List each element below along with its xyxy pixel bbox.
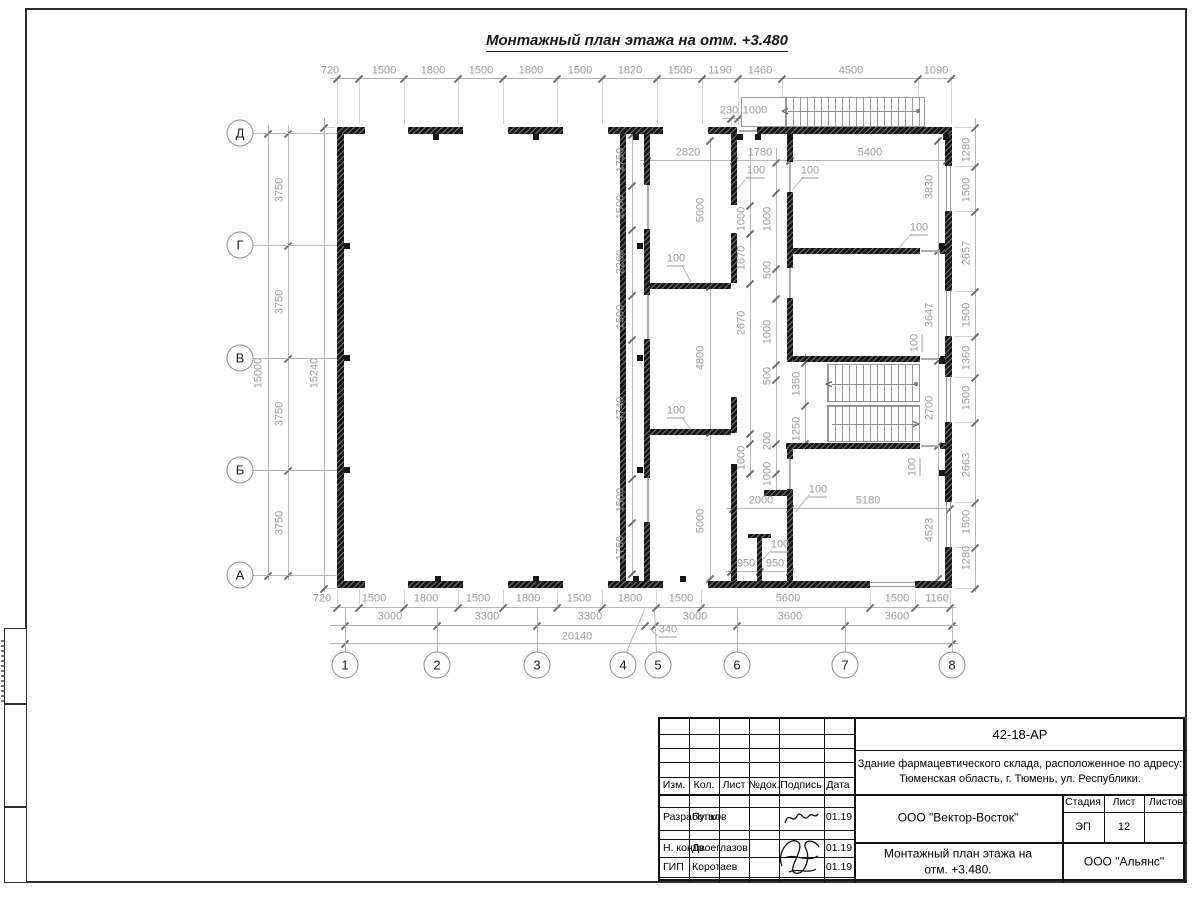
- column-tab: [637, 355, 643, 361]
- dimension-label: 1500: [469, 66, 493, 77]
- dimension-label: 720: [313, 594, 331, 605]
- dimension-label: 5600: [776, 594, 800, 605]
- title-block: 42-18-АР Здание фармацевтического склада…: [658, 717, 1185, 881]
- dimension-label: 500: [763, 367, 774, 385]
- extension-line: [954, 291, 973, 292]
- dimension-line: [288, 125, 289, 580]
- door-opening-line: [789, 162, 791, 192]
- dimension-label: 3750: [275, 511, 286, 535]
- stair-direction-arrow: >: [912, 417, 919, 431]
- door-opening-line: [921, 445, 940, 447]
- door-opening-line: [789, 268, 791, 298]
- wall: [731, 134, 737, 205]
- axis-bubble: 6: [724, 652, 751, 679]
- door-opening-line: [921, 250, 940, 252]
- dimension-label: 2260: [616, 250, 627, 274]
- col-ndok: №док.: [749, 780, 780, 792]
- dimension-label: 3300: [475, 612, 499, 623]
- extension-line: [557, 590, 558, 605]
- dimension-line: [324, 118, 325, 592]
- extension-line: [337, 80, 338, 124]
- margin-stamp-strip: [4, 628, 27, 883]
- date-developer: 01.19: [826, 812, 852, 824]
- extension-line: [557, 80, 558, 124]
- wall: [945, 547, 952, 581]
- column-tab: [435, 576, 441, 582]
- column-tab: [939, 470, 945, 476]
- wall: [915, 581, 952, 588]
- extension-line: [602, 590, 603, 605]
- dimension-label: 1000: [763, 207, 774, 231]
- extension-line: [954, 166, 973, 167]
- wall: [731, 397, 737, 433]
- dimension-label: 1750: [616, 536, 627, 560]
- dimension-label: 15000: [254, 358, 265, 389]
- wall: [793, 356, 920, 362]
- dimension-label: 3647: [925, 303, 936, 327]
- dimension-label: 3600: [885, 612, 909, 623]
- column-tab: [943, 134, 949, 140]
- dimension-line: [330, 643, 958, 644]
- extension-line: [954, 588, 973, 589]
- strip-fine-print: [1, 640, 4, 702]
- dimension-label: 1800: [421, 66, 445, 77]
- wall: [787, 489, 793, 581]
- axis-connector: [253, 245, 337, 246]
- dimension-label: 1500: [669, 594, 693, 605]
- dimension-label: 1500: [616, 488, 627, 512]
- dimension-label: 4740: [616, 397, 627, 421]
- dimension-label: 100: [801, 166, 819, 179]
- dimension-label: 1000: [743, 106, 767, 117]
- dimension-label: 2657: [962, 241, 973, 265]
- dimension-line: [330, 78, 956, 79]
- extension-line: [915, 590, 916, 605]
- wall: [644, 134, 650, 185]
- extension-line: [458, 80, 459, 124]
- axis-connector: [345, 607, 346, 652]
- dimension-label: 3600: [778, 612, 802, 623]
- window: [870, 582, 915, 587]
- stair-direction-arrow: <: [781, 104, 788, 118]
- dimension-label: 1350: [792, 372, 803, 396]
- dimension-label: 3000: [378, 612, 402, 623]
- dimension-label: 100: [667, 406, 685, 419]
- dimension-label: 1500: [616, 305, 627, 329]
- dimension-label: 100: [747, 166, 765, 179]
- wall: [337, 134, 344, 581]
- column-tab: [737, 134, 743, 140]
- sheet-label: Лист: [1113, 797, 1136, 809]
- dimension-line: [975, 118, 976, 592]
- axis-bubble: 8: [939, 652, 966, 679]
- dimension-label: 1000: [763, 462, 774, 486]
- extension-line: [954, 377, 973, 378]
- extension-line: [503, 590, 504, 605]
- dimension-label: 1500: [567, 594, 591, 605]
- dimension-label: 1500: [568, 66, 592, 77]
- axis-connector: [253, 575, 337, 576]
- dimension-label: 1000: [737, 446, 748, 470]
- dimension-line: [640, 160, 950, 161]
- extension-line: [702, 80, 703, 124]
- axis-bubble: А: [227, 562, 254, 589]
- window: [946, 291, 951, 336]
- dimension-label: 100: [908, 458, 921, 476]
- stair-line-dot: [916, 109, 920, 113]
- dimension-label: 1090: [924, 66, 948, 77]
- role-gip: ГИП: [663, 862, 684, 874]
- extension-line: [602, 80, 603, 124]
- stage-label: Стадия: [1065, 797, 1101, 809]
- extension-line: [951, 80, 952, 124]
- axis-connector: [437, 607, 438, 652]
- wall: [608, 581, 663, 588]
- dimension-label: 15240: [310, 358, 321, 389]
- dimension-label: 1750: [616, 148, 627, 172]
- extension-line: [656, 590, 657, 605]
- drawing-title-line2: отм. +3.480.: [924, 863, 991, 876]
- axis-connector: [253, 470, 337, 471]
- window: [946, 502, 951, 547]
- column-tab: [533, 134, 539, 140]
- column-tab: [344, 243, 350, 249]
- dimension-label: 1820: [618, 66, 642, 77]
- dimension-label: 230: [720, 106, 738, 117]
- door-opening-line: [647, 185, 649, 229]
- wall: [608, 127, 663, 134]
- dimension-label: 950: [737, 559, 755, 570]
- external-stair-treads: [785, 97, 920, 127]
- wall: [940, 443, 945, 449]
- stair-line-dot: [914, 382, 918, 386]
- dimension-label: 5180: [856, 496, 880, 507]
- column-tab: [633, 576, 639, 582]
- dimension-line: [632, 134, 633, 576]
- wall: [708, 581, 870, 588]
- signature-gip: [774, 832, 824, 878]
- dimension-label: 5000: [696, 509, 707, 533]
- doc-number: 42-18-АР: [993, 728, 1048, 742]
- dimension-label: 100: [771, 540, 789, 553]
- wall: [945, 336, 952, 377]
- wall: [748, 534, 771, 538]
- dimension-label: 1500: [962, 303, 973, 327]
- dimension-line: [330, 607, 956, 608]
- extension-line: [458, 590, 459, 605]
- name-ncontrol: Двоеглазов: [692, 843, 748, 855]
- stair-direction-arrow: <: [825, 377, 832, 391]
- extension-line: [404, 590, 405, 605]
- axis-bubble: 1: [332, 652, 359, 679]
- axis-connector: [952, 607, 953, 652]
- axis-bubble: Б: [227, 457, 254, 484]
- dimension-label: 1500: [668, 66, 692, 77]
- dimension-label: 1500: [885, 594, 909, 605]
- dimension-label: 1250: [792, 417, 803, 441]
- axis-bubble: Д: [227, 120, 254, 147]
- axis-bubble: 7: [832, 652, 859, 679]
- dimension-line: [710, 138, 711, 578]
- dimension-label: 20140: [562, 632, 593, 643]
- dimension-label: 1500: [372, 66, 396, 77]
- dimension-label: 500: [763, 261, 774, 279]
- column-tab: [344, 355, 350, 361]
- extension-line: [954, 502, 973, 503]
- extension-line: [954, 127, 973, 128]
- dimension-label: 200: [763, 432, 774, 450]
- dimension-label: 1460: [748, 66, 772, 77]
- stage-value: ЭП: [1075, 821, 1091, 833]
- extension-line: [954, 336, 973, 337]
- window: [946, 166, 951, 211]
- dimension-label: 1500: [616, 195, 627, 219]
- wall: [337, 581, 365, 588]
- dimension-label: 2820: [676, 148, 700, 159]
- window: [946, 377, 951, 422]
- axis-connector: [253, 358, 337, 359]
- dimension-label: 3750: [275, 290, 286, 314]
- dimension-label: 5000: [696, 198, 707, 222]
- extension-line: [950, 590, 951, 605]
- dimension-label: 1000: [737, 207, 748, 231]
- wall: [650, 283, 731, 289]
- extension-line: [337, 590, 338, 605]
- dimension-label: 1800: [618, 594, 642, 605]
- column-tab: [637, 243, 643, 249]
- axis-bubble: Г: [227, 232, 254, 259]
- wall: [708, 127, 737, 134]
- column-tab: [939, 358, 945, 364]
- door-opening-line: [789, 459, 791, 489]
- extension-line: [404, 80, 405, 124]
- dimension-label: 1500: [466, 594, 490, 605]
- project-description-line1: Здание фармацевтического склада, располо…: [858, 758, 1183, 770]
- drawing-sheet: Монтажный план этажа на отм. +3.480 <<>7…: [0, 0, 1200, 900]
- axis-bubble: 2: [424, 652, 451, 679]
- col-podpis: Подпись: [780, 780, 822, 792]
- wall: [644, 522, 650, 581]
- dimension-label: 340: [659, 625, 677, 638]
- dimension-label: 1190: [708, 66, 732, 77]
- column-tab: [433, 134, 439, 140]
- wall: [787, 298, 793, 362]
- wall: [945, 422, 952, 502]
- drawing-title-line1: Монтажный план этажа на: [884, 847, 1032, 860]
- wall: [757, 538, 762, 581]
- door-opening-line: [921, 358, 940, 360]
- stair-direction-line: [788, 111, 919, 112]
- dimension-label: 1800: [519, 66, 543, 77]
- date-gip: 01.19: [826, 862, 852, 874]
- design-company: ООО "Вектор-Восток": [898, 811, 1019, 824]
- extension-line: [359, 590, 360, 605]
- dimension-label: 100: [910, 223, 928, 236]
- date-ncontrol: 01.19: [826, 843, 852, 855]
- column-tab: [533, 576, 539, 582]
- wall: [650, 429, 731, 435]
- dimension-label: 2700: [925, 396, 936, 420]
- signature-developer: [780, 808, 822, 828]
- axis-bubble: 3: [524, 652, 551, 679]
- dimension-label: 1500: [362, 594, 386, 605]
- dimension-line: [268, 125, 269, 580]
- extension-line: [954, 422, 973, 423]
- dimension-label: 1500: [962, 386, 973, 410]
- dimension-label: 3300: [578, 612, 602, 623]
- wall: [408, 127, 463, 134]
- extension-line: [954, 211, 973, 212]
- column-tab: [680, 576, 686, 582]
- dimension-label: 3000: [683, 612, 707, 623]
- name-gip: Коротаев: [692, 862, 737, 874]
- wall: [757, 127, 952, 134]
- name-developer: Пупков: [692, 812, 727, 824]
- column-tab: [637, 467, 643, 473]
- dimension-label: 100: [910, 334, 923, 352]
- wall: [508, 127, 563, 134]
- dimension-label: 1800: [414, 594, 438, 605]
- door-opening-line: [647, 295, 649, 339]
- extension-line: [326, 127, 335, 128]
- dimension-label: 4800: [696, 346, 707, 370]
- dimension-label: 1500: [962, 510, 973, 534]
- dimension-label: 3750: [275, 178, 286, 202]
- extension-line: [503, 80, 504, 124]
- wall: [508, 581, 563, 588]
- door-opening-line: [739, 130, 757, 132]
- customer-org: ООО "Альянс": [1084, 855, 1164, 868]
- dimension-label: 950: [766, 559, 784, 570]
- extension-line: [870, 590, 871, 605]
- column-tab: [755, 134, 761, 140]
- dimension-label: 1280: [962, 546, 973, 570]
- plan-title: Монтажный план этажа на отм. +3.480: [486, 32, 788, 52]
- column-tab: [787, 134, 793, 140]
- dimension-label: 1500: [962, 178, 973, 202]
- axis-connector: [845, 607, 846, 652]
- col-list: Лист: [723, 780, 746, 792]
- strip-divider: [5, 703, 26, 705]
- dimension-label: 100: [809, 485, 827, 498]
- extension-line: [657, 80, 658, 124]
- strip-divider: [5, 806, 26, 808]
- dimension-label: 1670: [737, 246, 748, 270]
- stair-direction-line: [832, 384, 916, 385]
- dimension-label: 2663: [962, 453, 973, 477]
- col-data: Дата: [826, 780, 849, 792]
- dimension-label: 1360: [962, 346, 973, 370]
- sheets-label: Листов: [1149, 797, 1183, 809]
- dimension-label: 1160: [925, 594, 949, 605]
- wall: [793, 248, 920, 254]
- column-tab: [939, 243, 945, 249]
- dimension-label: 1780: [748, 148, 772, 159]
- column-tab: [344, 467, 350, 473]
- dimension-label: 1000: [763, 320, 774, 344]
- dimension-label: 1280: [962, 138, 973, 162]
- wall: [337, 127, 365, 134]
- col-izm: Изм.: [663, 780, 686, 792]
- dimension-label: 4523: [925, 518, 936, 542]
- dimension-label: 1800: [516, 594, 540, 605]
- wall: [945, 211, 952, 291]
- project-description-line2: Тюменская область, г. Тюмень, ул. Респуб…: [899, 773, 1141, 785]
- dimension-label: 100: [667, 254, 685, 267]
- axis-connector: [253, 133, 337, 134]
- extension-line: [326, 588, 335, 589]
- axis-bubble: В: [227, 345, 254, 372]
- extension-line: [701, 590, 702, 605]
- axis-bubble: 5: [645, 652, 672, 679]
- wall: [787, 192, 793, 268]
- dimension-line: [726, 508, 952, 509]
- wall: [786, 443, 920, 449]
- extension-line: [359, 80, 360, 124]
- dimension-line: [750, 148, 751, 478]
- column-tab: [633, 134, 639, 140]
- dimension-label: 3750: [275, 402, 286, 426]
- wall: [408, 581, 463, 588]
- extension-line: [738, 120, 739, 125]
- dimension-label: 5400: [858, 148, 882, 159]
- axis-bubble: 4: [610, 652, 637, 679]
- axis-connector: [537, 607, 538, 652]
- dimension-label: 3830: [925, 175, 936, 199]
- wall: [644, 339, 650, 478]
- col-kol: Кол.: [694, 780, 715, 792]
- door-opening-line: [647, 478, 649, 522]
- stair-direction-line: [832, 424, 916, 425]
- extension-line: [731, 120, 732, 125]
- axis-connector: [737, 607, 738, 652]
- dimension-label: 2000: [749, 496, 773, 507]
- sheet-value: 12: [1118, 821, 1130, 833]
- dimension-label: 4500: [839, 66, 863, 77]
- dimension-label: 720: [321, 66, 339, 77]
- dimension-label: 2670: [737, 311, 748, 335]
